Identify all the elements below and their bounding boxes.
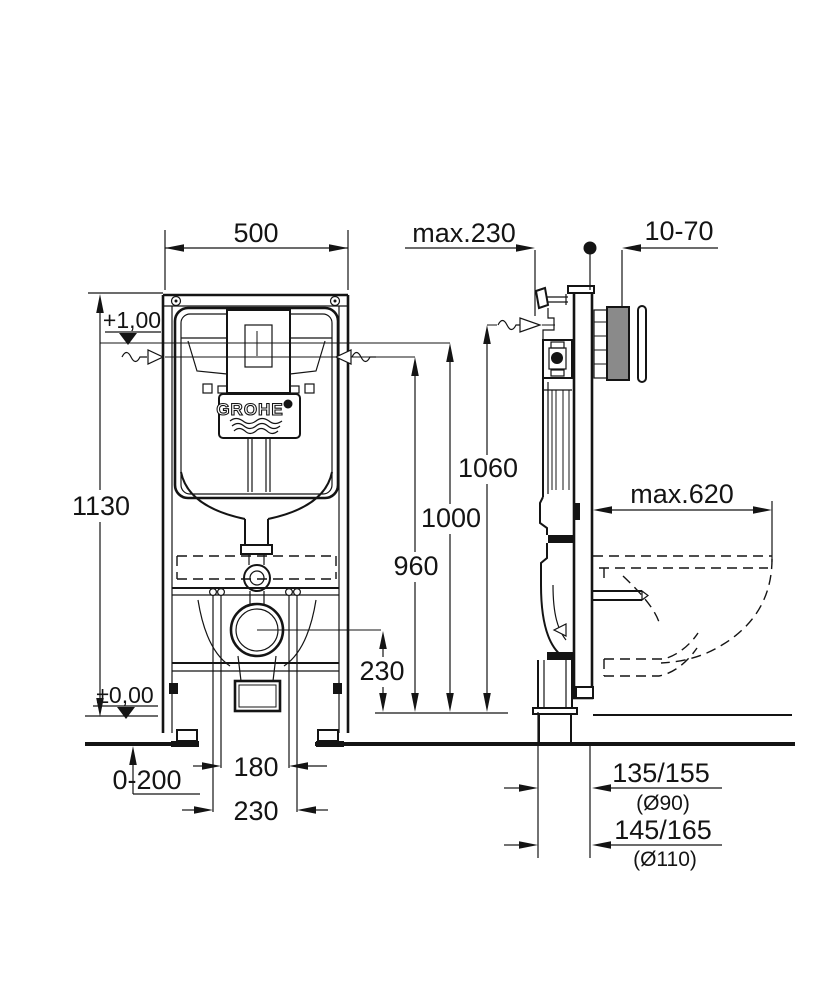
dim-frame-depth-label: max.230: [412, 218, 516, 248]
wall-clamp: [536, 288, 548, 308]
dim-1000-label: 1000: [421, 503, 481, 533]
installation-frame-drawing: GROHE: [0, 0, 834, 1000]
seal-band: [548, 535, 573, 543]
dim-outlet-110-dia-label: (Ø110): [633, 848, 697, 871]
grohe-logo-plate: GROHE: [216, 394, 300, 438]
dim-floor-buildup-label: 0-200: [112, 765, 181, 795]
dim-rod-spacing-label: 180: [233, 752, 278, 782]
dim-outlet-offset-label: 230: [233, 796, 278, 826]
grohe-logo-text: GROHE: [216, 400, 283, 419]
dim-width-label: 500: [233, 218, 278, 248]
dim-outlet-90-dia-label: (Ø90): [636, 792, 690, 815]
level-floor-label: ±0,00: [96, 682, 153, 708]
dim-outlet-90-label: 135/155: [612, 758, 710, 788]
wall-reference-dot: [584, 242, 597, 255]
registered-dot-icon: [284, 400, 293, 409]
dim-wall-finish-label: 10-70: [644, 216, 713, 246]
dim-960-label: 960: [393, 551, 438, 581]
level-upper-label: +1,00: [103, 307, 161, 333]
mounting-bolt: [294, 589, 301, 596]
dim-outlet-height-label: 230: [359, 656, 404, 686]
frame-side-profile: [574, 290, 592, 698]
mounting-bolt: [218, 589, 225, 596]
dim-bowl-depth-label: max.620: [630, 479, 734, 509]
technical-drawing-page: GROHE: [0, 0, 834, 1000]
mounting-bolt: [210, 589, 217, 596]
side-foot: [576, 687, 593, 698]
dim-1060-label: 1060: [458, 453, 518, 483]
flush-window: [227, 310, 290, 393]
seal-band: [547, 652, 573, 660]
mounting-bolt: [286, 589, 293, 596]
dim-height-label: 1130: [72, 491, 130, 521]
dim-outlet-110-label: 145/165: [614, 815, 712, 845]
